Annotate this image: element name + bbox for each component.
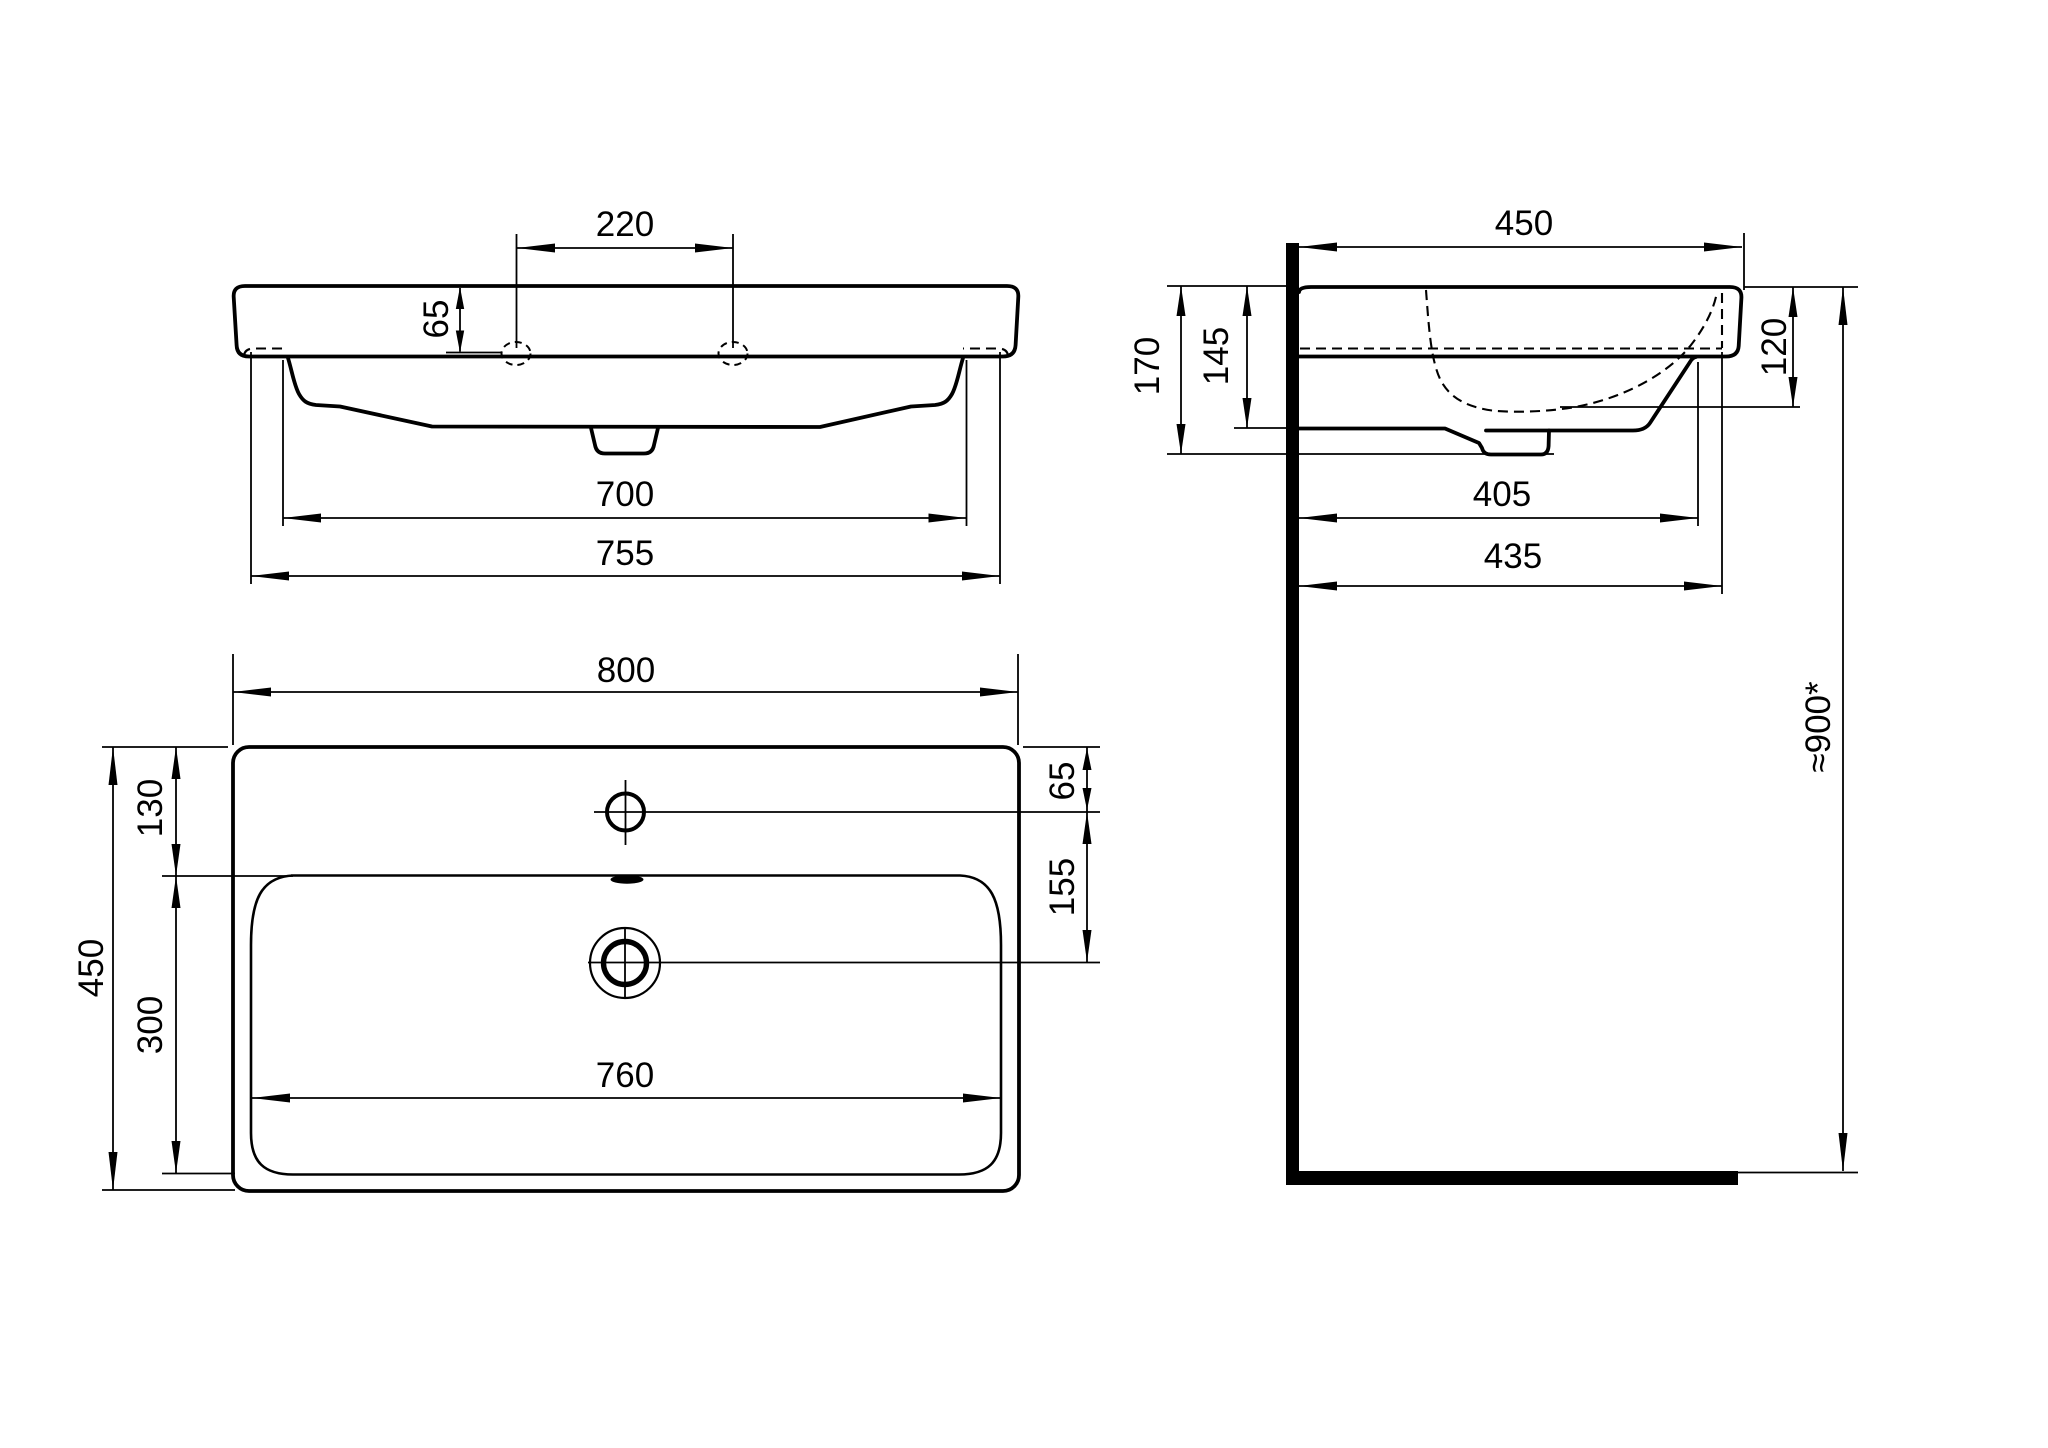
svg-text:450: 450: [72, 939, 111, 997]
svg-text:760: 760: [596, 1056, 654, 1095]
svg-text:155: 155: [1043, 858, 1082, 916]
svg-text:220: 220: [596, 205, 654, 244]
svg-text:65: 65: [417, 300, 456, 339]
svg-text:755: 755: [596, 534, 654, 573]
svg-text:145: 145: [1197, 327, 1236, 385]
svg-text:405: 405: [1473, 475, 1531, 514]
svg-text:120: 120: [1755, 318, 1794, 376]
svg-text:300: 300: [131, 996, 170, 1054]
svg-text:170: 170: [1128, 337, 1167, 395]
svg-text:450: 450: [1495, 204, 1553, 243]
svg-text:65: 65: [1043, 762, 1082, 801]
svg-text:800: 800: [597, 651, 655, 690]
svg-text:435: 435: [1484, 537, 1542, 576]
svg-text:≈900*: ≈900*: [1799, 681, 1838, 773]
svg-text:130: 130: [131, 779, 170, 837]
svg-text:700: 700: [596, 475, 654, 514]
